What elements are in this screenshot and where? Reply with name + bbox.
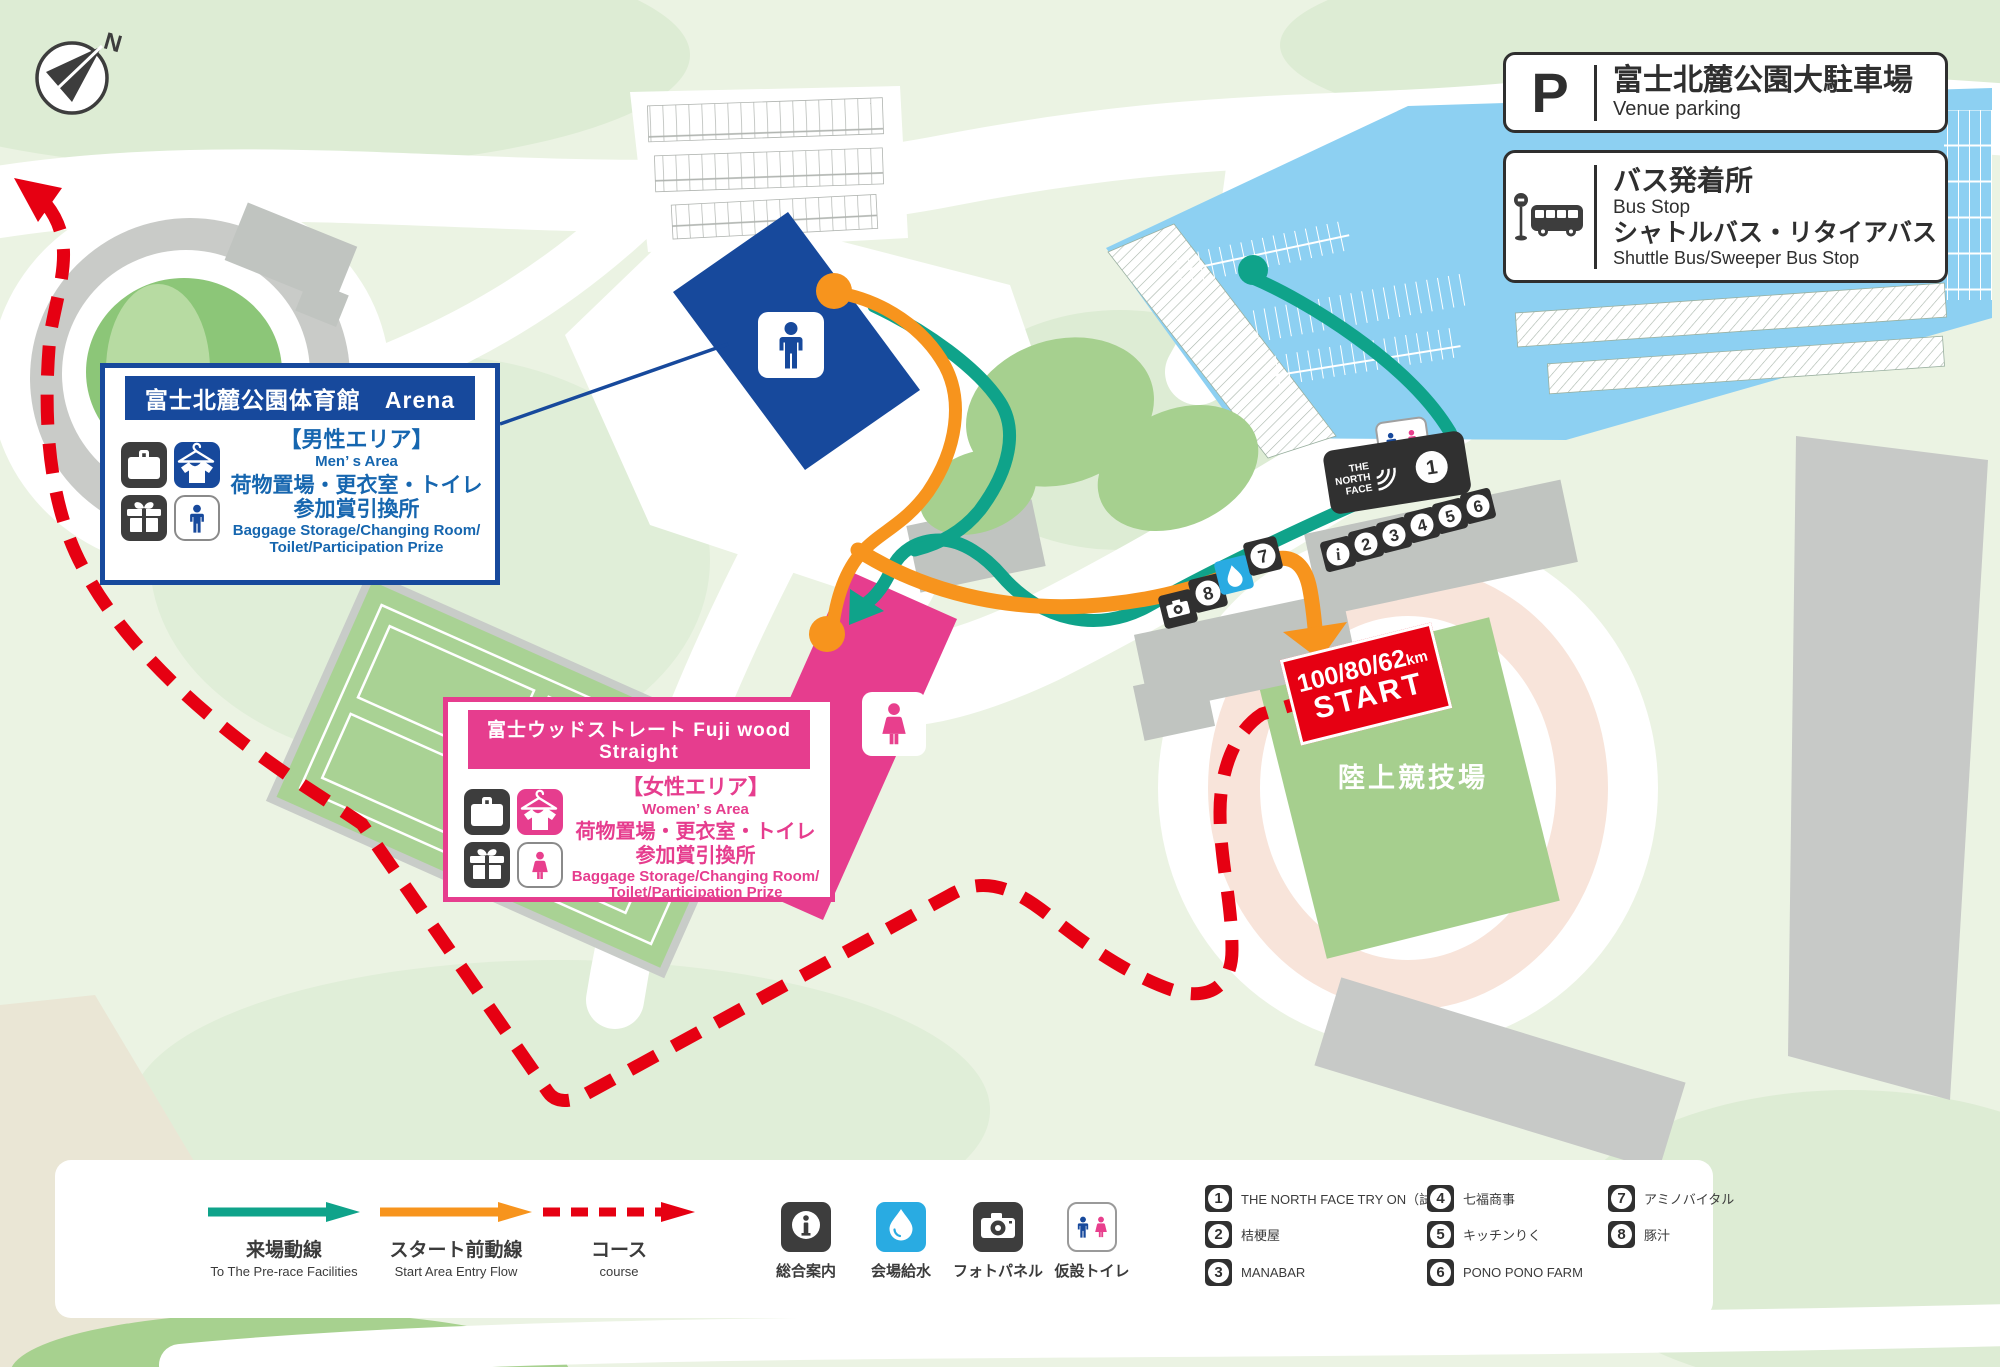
arena-header: 富士北麓公園体育館 Arena	[125, 376, 475, 420]
shuttle-title: シャトルバス・リタイアバス	[1613, 219, 1937, 248]
womens-area-title: 【女性エリア】	[569, 776, 822, 801]
vendor-number-badge: 8	[1608, 1221, 1635, 1248]
vendor-label: 七福商事	[1463, 1189, 1515, 1208]
toilet-icon	[1067, 1202, 1117, 1252]
camera-icon	[973, 1202, 1023, 1252]
parking-icon: P	[1506, 65, 1594, 121]
arena-icon-grid	[121, 442, 220, 541]
vendor-label: PONO PONO FARM	[1463, 1265, 1583, 1280]
womens-area-subtitle: Women’ s Area	[569, 801, 822, 819]
vendor-item: 1 THE NORTH FACE TRY ON（試履）	[1205, 1185, 1458, 1212]
vendor-item: 6 PONO PONO FARM	[1427, 1259, 1583, 1286]
legend-flow-course: コース course	[513, 1200, 725, 1279]
venue-parking-box: P 富士北麓公園大駐車場 Venue parking	[1503, 52, 1948, 133]
legend-facility-toilet: 仮設トイレ	[1037, 1202, 1147, 1281]
arena-services-en1: Baggage Storage/Changing Room/	[226, 523, 487, 540]
red-dashed-arrow-icon	[539, 1200, 699, 1224]
info-icon	[781, 1202, 831, 1252]
vendor-label: MANABAR	[1241, 1265, 1305, 1280]
arena-services-jp1: 荷物置場・更衣室・トイレ	[226, 474, 487, 499]
fuji-services-jp2: 参加賞引換所	[569, 845, 822, 869]
flow-label: コース	[513, 1235, 725, 1262]
vendor-item: 8 豚汁	[1608, 1221, 1670, 1248]
legend-facility-water: 会場給水	[846, 1202, 956, 1281]
vendor-item: 4 七福商事	[1427, 1185, 1515, 1212]
orange-arrow-icon	[376, 1200, 536, 1224]
vendor-number-badge: 6	[1427, 1259, 1454, 1286]
prize-icon	[464, 842, 510, 888]
arena-services-en2: Toilet/Participation Prize	[226, 540, 487, 557]
flow-sublabel: course	[513, 1264, 725, 1279]
vendor-item: 3 MANABAR	[1205, 1259, 1305, 1286]
legend-facility-info: 総合案内	[751, 1202, 861, 1281]
vendor-number-badge: 1	[1205, 1185, 1232, 1212]
mens-toilet-icon	[174, 495, 220, 541]
vendor-number-badge: 7	[1608, 1185, 1635, 1212]
fuji-services-en1: Baggage Storage/Changing Room/	[569, 869, 822, 886]
water-icon	[876, 1202, 926, 1252]
arena-info-box: 富士北麓公園体育館 Arena	[100, 363, 500, 585]
arena-services-jp2: 参加賞引換所	[226, 498, 487, 523]
vendor-label: アミノバイタル	[1644, 1189, 1734, 1208]
mens-area-subtitle: Men’ s Area	[226, 453, 487, 471]
bus-stop-box: バス発着所 Bus Stop シャトルバス・リタイアバス Shuttle Bus…	[1503, 150, 1948, 283]
fuji-icon-grid	[464, 789, 563, 888]
route-node-mens	[816, 273, 852, 309]
changing-room-icon	[174, 442, 220, 488]
vendor-number-badge: 2	[1205, 1221, 1232, 1248]
vendor-number-badge: 5	[1427, 1221, 1454, 1248]
vendor-number-badge: 4	[1427, 1185, 1454, 1212]
fuji-wood-header: 富士ウッドストレート Fuji wood Straight	[468, 710, 810, 769]
vendor-label: 豚汁	[1644, 1225, 1670, 1244]
bus-subtitle: Bus Stop	[1613, 197, 1937, 219]
legend-panel: 来場動線 To The Pre-race Facilities スタート前動線 …	[55, 1160, 1713, 1318]
route-node-womens	[809, 616, 845, 652]
fuji-wood-info-box: 富士ウッドストレート Fuji wood Straight	[443, 697, 835, 902]
prize-icon	[121, 495, 167, 541]
teal-arrow-icon	[204, 1200, 364, 1224]
venue-map: 8 7 i 2 3 4 5	[0, 0, 2000, 1367]
fuji-services-jp1: 荷物置場・更衣室・トイレ	[569, 821, 822, 845]
vendor-number-badge: 3	[1205, 1259, 1232, 1286]
vendor-label: 桔梗屋	[1241, 1225, 1280, 1244]
mens-area-title: 【男性エリア】	[226, 427, 487, 453]
vendor-item: 2 桔梗屋	[1205, 1221, 1280, 1248]
vendor-item: 5 キッチンりく	[1427, 1221, 1541, 1248]
vendor-label: キッチンりく	[1463, 1225, 1541, 1244]
stadium-label: 陸上競技場	[1338, 763, 1488, 793]
baggage-icon	[121, 442, 167, 488]
vendor-item: 7 アミノバイタル	[1608, 1185, 1734, 1212]
start-unit: km	[1404, 647, 1429, 669]
womens-toilet-icon	[517, 842, 563, 888]
baggage-icon	[464, 789, 510, 835]
facility-label: 仮設トイレ	[1037, 1260, 1147, 1281]
parking-title: 富士北麓公園大駐車場	[1613, 64, 1913, 99]
facility-label: 会場給水	[846, 1260, 956, 1281]
route-node-bus-stop	[1238, 255, 1268, 285]
bus-icon	[1506, 191, 1594, 243]
vendor-label: THE NORTH FACE TRY ON（試履）	[1241, 1189, 1458, 1208]
bus-title: バス発着所	[1613, 165, 1937, 197]
facility-label: 総合案内	[751, 1260, 861, 1281]
shuttle-subtitle: Shuttle Bus/Sweeper Bus Stop	[1613, 248, 1937, 269]
parking-subtitle: Venue parking	[1613, 98, 1913, 121]
changing-room-icon	[517, 789, 563, 835]
fuji-services-en2: Toilet/Participation Prize	[569, 885, 822, 902]
